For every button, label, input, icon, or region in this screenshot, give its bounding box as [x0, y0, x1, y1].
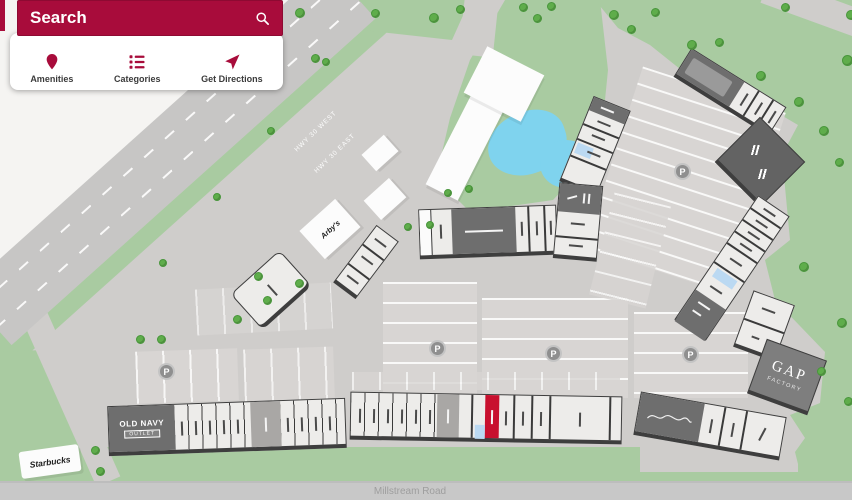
store-label-illegible — [373, 409, 375, 423]
tree-icon — [715, 38, 724, 47]
tree-icon — [429, 13, 439, 23]
categories-button[interactable]: Categories — [114, 53, 161, 84]
tree-icon — [609, 10, 619, 20]
store-label-illegible — [447, 409, 449, 423]
building-strip-south-center[interactable] — [350, 392, 623, 445]
categories-label: Categories — [114, 74, 161, 84]
tree-icon — [794, 97, 804, 107]
tree-icon — [456, 5, 465, 14]
building-strip-south-west[interactable]: OLD NAVY OUTLET — [107, 398, 347, 456]
store-label-illegible — [740, 243, 752, 252]
store-label-illegible — [359, 409, 361, 423]
store-highlighted[interactable] — [485, 395, 500, 438]
tree-icon — [756, 71, 766, 81]
store-label-illegible — [571, 222, 585, 225]
store-label-illegible — [465, 229, 503, 232]
store-label-illegible — [579, 413, 581, 427]
store-label-illegible — [265, 418, 267, 432]
tree-icon — [404, 223, 412, 231]
tree-icon — [846, 10, 852, 20]
tree-icon — [781, 3, 790, 12]
parking-icon[interactable]: P — [545, 345, 562, 362]
tree-icon — [159, 259, 167, 267]
store-logo-mark — [588, 194, 590, 204]
store-label-illegible — [709, 419, 713, 433]
store-label-illegible — [347, 275, 359, 285]
starbucks-label: Starbucks — [29, 454, 71, 470]
store-unit[interactable] — [250, 401, 282, 447]
tree-icon — [91, 446, 100, 455]
old-navy-label: OLD NAVY — [119, 418, 164, 429]
script-logo-mark — [645, 408, 695, 430]
store-label-illegible — [361, 255, 373, 265]
store-label-illegible — [758, 428, 766, 441]
store-label-illegible — [440, 225, 442, 239]
store-label-illegible — [768, 111, 777, 124]
store-label-illegible — [540, 412, 542, 426]
store-logo-mark — [583, 193, 585, 203]
tree-icon — [233, 315, 242, 324]
parking-lot-west2 — [243, 346, 335, 401]
store-label-illegible — [762, 307, 776, 313]
tree-icon — [254, 272, 263, 281]
store-old-navy[interactable]: OLD NAVY OUTLET — [108, 405, 176, 452]
amenities-button[interactable]: Amenities — [30, 53, 73, 84]
store-label-illegible — [536, 221, 538, 235]
parking-lot-west — [135, 348, 239, 404]
store-label-illegible — [521, 222, 523, 236]
get-directions-label: Get Directions — [201, 74, 263, 84]
store-label-illegible — [429, 410, 431, 424]
store-label-illegible — [756, 219, 768, 228]
store-unit[interactable] — [437, 394, 460, 437]
tree-icon — [213, 193, 221, 201]
store-label-illegible — [415, 410, 417, 424]
restroom-unit[interactable] — [712, 268, 737, 290]
restroom-unit[interactable] — [475, 425, 485, 439]
store-label-illegible — [692, 309, 701, 316]
store-label-illegible — [597, 120, 611, 127]
search-icon[interactable] — [255, 11, 270, 26]
tree-icon — [295, 279, 304, 288]
mall-map[interactable]: HWY 30 WEST HWY 30 EAST Arby's — [0, 0, 852, 500]
tree-icon — [465, 185, 473, 193]
tree-icon — [295, 8, 305, 18]
store-label-illegible — [522, 412, 524, 426]
store-label-illegible — [710, 285, 722, 294]
store-label-illegible — [752, 335, 760, 339]
store-unit-anchor[interactable] — [451, 207, 517, 254]
adjacent-panel-edge — [0, 0, 5, 31]
store-logo-mark — [567, 195, 577, 199]
tree-icon — [842, 55, 852, 66]
navigation-arrow-icon — [223, 53, 241, 71]
tree-icon — [835, 158, 844, 167]
map-pin-icon — [44, 53, 60, 71]
tree-icon — [371, 9, 380, 18]
store-label-illegible — [698, 301, 710, 310]
tree-icon — [267, 127, 275, 135]
tree-icon — [136, 335, 145, 344]
amenities-label: Amenities — [30, 74, 73, 84]
list-icon — [128, 53, 146, 71]
store-label-illegible — [550, 221, 552, 235]
tree-icon — [96, 467, 105, 476]
store-label-illegible — [375, 238, 387, 248]
store-label-illegible — [754, 102, 763, 115]
search-placeholder: Search — [30, 8, 87, 28]
store-label-illegible — [601, 106, 615, 113]
tree-icon — [547, 2, 556, 11]
millstream-road-label: Millstream Road — [330, 486, 490, 497]
parking-icon[interactable]: P — [158, 363, 175, 380]
tree-icon — [627, 25, 636, 34]
tree-icon — [687, 40, 697, 50]
store-label-illegible — [763, 208, 775, 217]
tree-icon — [799, 262, 809, 272]
store-unit-anchor[interactable] — [635, 393, 705, 443]
parking-rows-south — [352, 372, 620, 390]
tree-icon — [817, 367, 826, 376]
store-label-illegible — [401, 410, 403, 424]
tree-icon — [157, 335, 166, 344]
parking-icon[interactable]: P — [674, 163, 691, 180]
crossed-logo-icon — [750, 145, 762, 155]
store-label-illegible — [730, 423, 734, 437]
store-label-illegible — [387, 409, 389, 423]
store-label-illegible — [569, 244, 583, 247]
store-unit[interactable] — [419, 210, 433, 255]
store-unit-anchor[interactable] — [558, 183, 602, 215]
tree-icon — [651, 8, 660, 17]
grass-bottom-right — [798, 450, 852, 481]
tree-icon — [322, 58, 330, 66]
store-label-illegible — [491, 410, 493, 424]
arbys-label: Arby's — [318, 218, 341, 240]
millstream-road: Millstream Road — [0, 481, 852, 500]
tree-icon — [533, 14, 542, 23]
tree-icon — [444, 189, 452, 197]
search-input[interactable]: Search — [17, 0, 283, 36]
tree-icon — [819, 126, 829, 136]
store-label-illegible — [592, 134, 606, 141]
building-strip-center[interactable] — [418, 205, 558, 260]
crossed-logo-icon — [758, 169, 770, 179]
tree-icon — [837, 318, 847, 328]
map-toolbar: Amenities Categories Get Directions — [10, 33, 283, 90]
tree-icon — [519, 3, 528, 12]
tree-icon — [426, 221, 434, 229]
store-label-illegible — [748, 231, 760, 240]
store-label-illegible — [740, 93, 749, 106]
parking-icon[interactable]: P — [682, 346, 699, 363]
building-strip-west-anchor[interactable] — [553, 182, 603, 262]
get-directions-button[interactable]: Get Directions — [201, 53, 263, 84]
old-navy-outlet-label: OUTLET — [124, 429, 160, 438]
tree-icon — [263, 296, 272, 305]
parking-icon[interactable]: P — [429, 340, 446, 357]
tree-icon — [311, 54, 320, 63]
store-label-illegible — [730, 257, 742, 266]
store-label-illegible — [505, 411, 507, 425]
tree-icon — [844, 397, 852, 406]
store-label-illegible — [267, 285, 277, 296]
